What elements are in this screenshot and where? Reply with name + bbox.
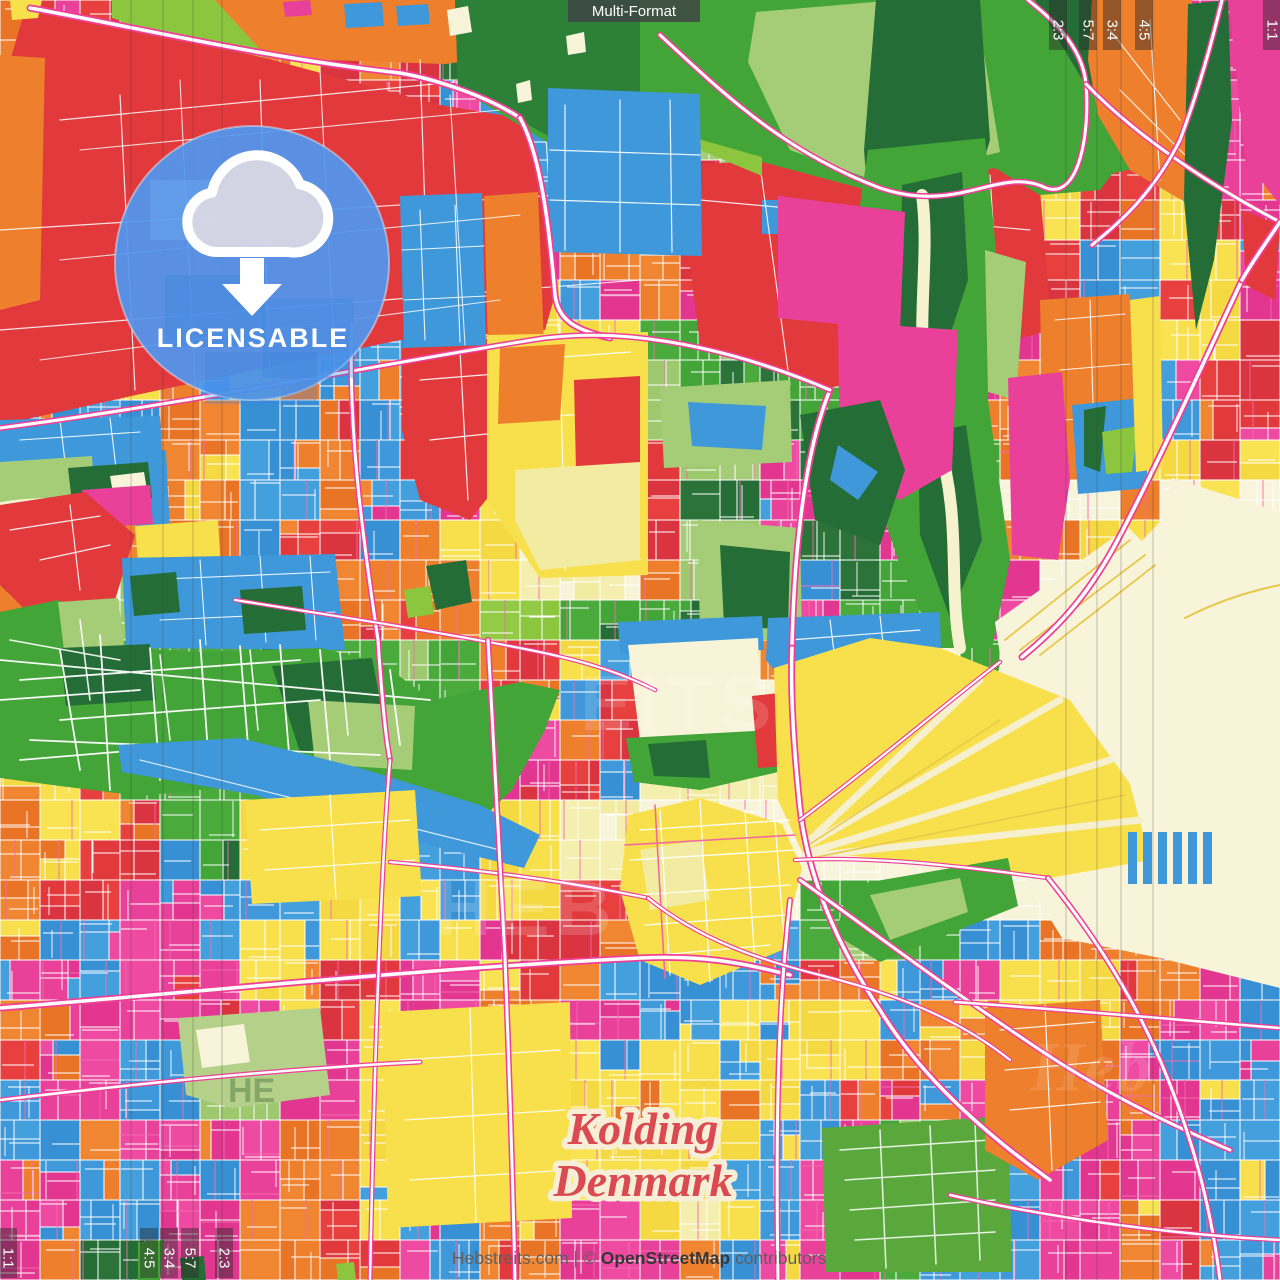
svg-text:4:5: 4:5 [1136,20,1153,41]
svg-text:3:4: 3:4 [161,1248,178,1269]
svg-text:3:4: 3:4 [1104,20,1121,41]
svg-text:Denmark: Denmark [553,1155,733,1206]
svg-text:2:3: 2:3 [216,1248,233,1269]
svg-text:5:7: 5:7 [1080,20,1097,41]
svg-text:2:3: 2:3 [1050,20,1067,41]
svg-text:5:7: 5:7 [182,1248,199,1269]
svg-text:1:1: 1:1 [0,1248,17,1269]
svg-text:Kolding: Kolding [567,1103,719,1154]
svg-text:Heb: Heb [1029,1029,1151,1106]
svg-text:HE: HE [228,1072,275,1110]
svg-text:1:1: 1:1 [1264,20,1280,41]
svg-text:EITS: EITS [580,659,777,747]
svg-text:4:5: 4:5 [141,1248,158,1269]
svg-text:LICENSABLE: LICENSABLE [157,323,350,353]
svg-text:Hebstreits.com | © OpenStreetM: Hebstreits.com | © OpenStreetMap contrib… [452,1248,827,1268]
svg-text:Multi-Format: Multi-Format [592,3,677,20]
svg-text:HEB: HEB [435,864,618,952]
